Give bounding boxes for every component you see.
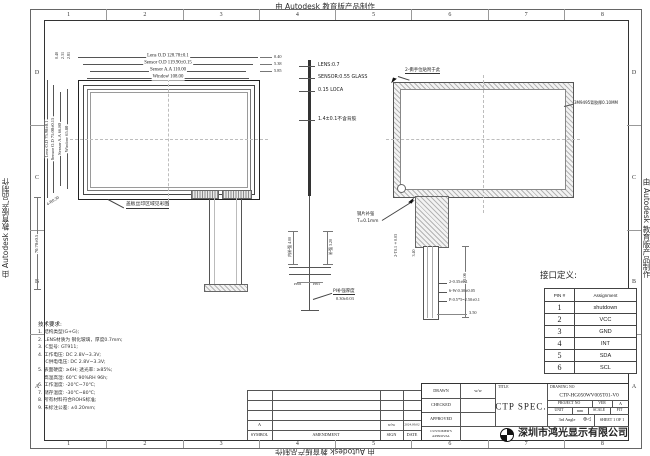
- revision-table: A w/w 2024.09.02 SYMBOL AMENDMENT SIGN D…: [247, 390, 421, 440]
- drawing-no-label: DRAWING NO: [550, 386, 574, 390]
- zone-col: 2: [107, 9, 183, 20]
- zone-col: 2: [107, 440, 183, 448]
- spec-label: 2-0.35±0.1: [449, 280, 468, 284]
- dim-label-sensor-od-h: Sensor O.D 119.90±0.15: [143, 62, 193, 67]
- assignment-col-header: Assignment: [574, 289, 636, 302]
- zone-col: 5: [336, 440, 412, 448]
- unit-value: mm: [577, 409, 583, 413]
- fpc-tail-trace: [427, 246, 428, 318]
- notes-title: 技术要求:: [38, 320, 248, 328]
- note-item: 2. LENS材质为 钢化玻璃，厚度0.7mm;: [38, 337, 248, 345]
- drawing-sheet: 由 Autodesk 教育版产品制作 由 Autodesk 教育版产品制作 由 …: [0, 0, 650, 456]
- leader-line: [299, 120, 315, 121]
- company-logo-icon: [500, 428, 514, 442]
- dim-label-lens-od-h: Lens O.D 128.78±0.1: [146, 55, 190, 60]
- project-no-label: PROJECT NO: [558, 402, 580, 406]
- note-item: 4. 工作电压: DC 2.8V~3.3V;: [38, 352, 248, 360]
- dim-tick: [34, 197, 41, 198]
- leader-line: [299, 66, 315, 67]
- pin-table-title: 接口定义:: [540, 272, 577, 281]
- spec-label: P:0.5*5=2.50±0.1: [449, 298, 480, 302]
- dim-tick: [323, 231, 333, 232]
- dim-label-offset: 2.81: [67, 52, 71, 59]
- note-item: 6. 工作温度: -20℃~70℃;: [38, 382, 248, 390]
- note-item: 5. 表面硬度: ≥6H; 透光率: ≥85%;: [38, 367, 248, 375]
- fpc-tail-trace: [432, 246, 433, 318]
- pin-number: 1: [545, 302, 575, 314]
- adhesive-tape-note: 3M9495背胶厚0.10MM: [574, 101, 618, 105]
- leader-line: [260, 57, 272, 58]
- note-item: 3. IC型号: GT911;: [38, 344, 248, 352]
- dim-tick: [34, 289, 41, 290]
- pin-number: 5: [545, 350, 575, 362]
- dim-label-offset: 2.31: [61, 52, 65, 59]
- table-line: [547, 384, 548, 426]
- centerline-horizontal: [70, 139, 268, 140]
- sheet-label: SHEET 1 OF 1: [600, 418, 624, 422]
- table-line: [422, 398, 495, 399]
- dim-tick: [301, 310, 319, 311]
- pi-stiffener-note: PI补强厚度: [333, 290, 355, 295]
- side-thickness-note: 2-T0.1±0.03: [394, 234, 398, 257]
- pin6-label: PIN6: [294, 283, 301, 286]
- zone-row: D: [30, 21, 44, 126]
- table-line: [247, 400, 421, 401]
- scale-label: SCALE: [593, 409, 605, 413]
- centerline-vertical: [483, 75, 484, 213]
- pin1-label: PIN1: [313, 283, 320, 286]
- unit-label: UNIT: [554, 409, 563, 413]
- zone-col: 5: [336, 9, 412, 20]
- table-line: [594, 414, 595, 426]
- layer-label-lens: LENS:0.7: [318, 64, 340, 69]
- pin-number: 3: [545, 326, 575, 338]
- leader-line: [260, 71, 272, 72]
- table-line: [247, 430, 421, 431]
- note-item: 7. 储存温度: -30℃~80℃;: [38, 390, 248, 398]
- zone-col: 8: [565, 440, 640, 448]
- symbol-header: SYMBOL: [251, 433, 268, 437]
- projection-symbol-icon: ⊕◁: [583, 418, 591, 423]
- dim-label-offset: 0.40: [55, 52, 59, 59]
- drawn-sign: w/w: [474, 389, 482, 393]
- ver-value: A: [619, 401, 622, 405]
- fpc-cross-line: [289, 274, 331, 275]
- table-line: [547, 414, 629, 415]
- leader-line: [438, 283, 447, 284]
- note-item: 9. 未标注公差: ±0.20mm;: [38, 405, 248, 413]
- centerline-vertical: [168, 74, 169, 206]
- date-header: DATE: [407, 433, 418, 437]
- zone-ruler-bottom: 1 2 3 4 5 6 7 8: [31, 440, 640, 448]
- leader-line: [299, 78, 315, 79]
- steel-stiffener-value: T=0.1mm: [357, 220, 378, 224]
- fpc-side-line: [309, 196, 310, 311]
- table-line: [422, 412, 495, 413]
- note-item: 高温高湿: 60℃ 90%RH 96h;: [38, 375, 248, 383]
- table-line: [272, 390, 273, 440]
- fpc-tail-edge: [241, 198, 242, 284]
- pin-assignment: SCL: [574, 362, 636, 374]
- dim-label-sensor-aa-v: Sensor A.A 66.80: [58, 122, 63, 156]
- layer-label-sensor: SENSOR:0.55 GLASS: [318, 76, 367, 81]
- technical-notes: 技术要求: 1. 结构类型(G+G); 2. LENS材质为 钢化玻璃，厚度0.…: [38, 320, 248, 413]
- revision-sign: w/w: [388, 423, 395, 427]
- zone-col: 1: [31, 440, 107, 448]
- tear-tab-note: 2-撕手位贴附于此: [405, 69, 440, 74]
- fpc-tail-edge: [209, 198, 210, 284]
- pin-assignment: INT: [574, 338, 636, 350]
- dim-label-window-h: Window 108.00: [152, 76, 185, 81]
- table-line: [592, 400, 593, 407]
- zone-col: 3: [184, 9, 260, 20]
- title-block: DRAWN w/w CHECKED APPROVED CUSTOMER'S AP…: [421, 383, 629, 441]
- dim-label-offset: 5.85: [274, 69, 282, 73]
- pin-assignment: SDA: [574, 350, 636, 362]
- zone-col: 7: [489, 440, 565, 448]
- layer-label-thickness: 1.4±0.1不含背胶: [318, 118, 356, 123]
- dim-tick: [462, 317, 469, 318]
- alignment-hole: [397, 184, 406, 193]
- revision-symbol: A: [258, 423, 261, 428]
- silk-print-note: 盖板丝印区域见彩图: [126, 203, 169, 209]
- leader-line: [438, 301, 447, 302]
- pin-number: 2: [545, 314, 575, 326]
- dim-line: [293, 231, 294, 264]
- zone-col: 4: [260, 440, 336, 448]
- company-name: 深圳市鸿光显示有限公司: [518, 429, 628, 439]
- zone-col: 6: [412, 440, 488, 448]
- dim-label-stiffener-left: 内补强 4.00: [288, 236, 292, 258]
- pin-number: 4: [545, 338, 575, 350]
- fpc-tail-body: [423, 246, 439, 320]
- table-line: [247, 390, 421, 391]
- dim-label-offset: 5.38: [274, 62, 282, 66]
- steel-stiffener-note: 钢片补强: [357, 213, 374, 217]
- dim-label-offset: 0.40: [274, 55, 282, 59]
- pin-number: 6: [545, 362, 575, 374]
- title-label: TITLE: [498, 386, 509, 390]
- dim-tick: [288, 231, 298, 232]
- table-line: [610, 407, 611, 414]
- dim-label-sensor-aa-h: Sensor A.A 110.00: [149, 69, 187, 74]
- pin-table: PIN # Assignment 1shutdown 2VCC 3GND 4IN…: [544, 288, 637, 374]
- table-line: [572, 407, 573, 414]
- pin-assignment: GND: [574, 326, 636, 338]
- leader-line: [299, 91, 315, 92]
- pin-assignment: VCC: [574, 314, 636, 326]
- fpc-stiffener: [204, 284, 248, 292]
- leader-line: [260, 64, 272, 65]
- watermark-left: 由 Autodesk 教育版产品制作: [0, 178, 11, 278]
- note-item: 8. 所有材料符合ROHS标准;: [38, 397, 248, 405]
- checked-label: CHECKED: [431, 403, 451, 407]
- drawing-title: CTP SPEC.: [495, 403, 546, 412]
- table-line: [380, 390, 381, 440]
- fpc-cross-line: [289, 267, 331, 268]
- leader-line: [438, 292, 447, 293]
- zone-col: 3: [184, 440, 260, 448]
- table-line: [612, 400, 613, 407]
- zone-col: 4: [260, 9, 336, 20]
- customer-approval-label: CUSTOMER'S APPROVAL: [423, 427, 459, 440]
- dim-label-total-length: 70.70±0.5: [35, 234, 40, 254]
- dim-label-lens-od-v: Lens O.D 75.98±0.1: [45, 120, 50, 159]
- steel-stiffener-block: [415, 196, 449, 248]
- layer-label-loca: 0.15 LOCA: [318, 89, 343, 94]
- leader-line: [437, 314, 467, 315]
- zone-col: 6: [412, 9, 488, 20]
- fpc-pad: [222, 190, 252, 199]
- fpc-tail-trace: [214, 198, 215, 284]
- front-view-active-area-outline: [90, 92, 248, 188]
- table-line: [247, 390, 248, 440]
- approved-label: APPROVED: [430, 417, 452, 421]
- zone-col: 1: [31, 9, 107, 20]
- dim-label-sensor-od-v: Sensor O.D 75.00±0.15: [51, 117, 56, 162]
- watermark-right: 由 Autodesk 教育版产品制作: [641, 178, 650, 278]
- zone-col: 7: [489, 9, 565, 20]
- dim-label: 3.40: [412, 249, 416, 258]
- pin-assignment: shutdown: [574, 302, 636, 314]
- note-item: IC供电电压: DC 2.8V~3.3V;: [38, 359, 248, 367]
- dim-tick: [323, 264, 333, 265]
- dim-label-stiffener-right: 补强 3.20: [329, 238, 333, 256]
- zone-row: D: [627, 21, 641, 126]
- zone-col: 8: [565, 9, 640, 20]
- spec-label: 6-W:0.30±0.05: [449, 289, 475, 293]
- table-line: [247, 420, 421, 421]
- stackup-section-line: [308, 60, 311, 196]
- revision-date: 2024.09.02: [404, 423, 419, 426]
- fit-label: FIT: [617, 409, 623, 413]
- fpc-tail-trace: [236, 198, 237, 284]
- table-line: [460, 384, 461, 441]
- zone-ruler-top: 1 2 3 4 5 6 7 8: [31, 9, 640, 20]
- zone-row: C: [627, 126, 641, 231]
- projection-angle-label: 3rd Angle: [559, 418, 576, 422]
- pin-col-header: PIN #: [545, 289, 575, 302]
- sign-header: SIGN: [387, 433, 397, 437]
- dim-tick: [288, 264, 298, 265]
- amendment-header: AMENDMENT: [312, 433, 339, 437]
- drawing-no-value: CTP-HG050WV005T01-V0: [559, 393, 618, 398]
- table-line: [588, 407, 589, 414]
- table-line: [403, 390, 404, 440]
- note-item: 1. 结构类型(G+G);: [38, 329, 248, 337]
- drawn-label: DRAWN: [433, 389, 448, 393]
- dim-label: 3.50: [469, 311, 477, 315]
- zone-ruler-right: D C B A: [627, 21, 641, 439]
- ver-label: VER: [598, 402, 606, 406]
- centerline-horizontal: [386, 139, 580, 140]
- pi-stiffener-value: 0.30±0.03: [336, 297, 354, 301]
- table-line: [247, 410, 421, 411]
- dim-label-window-v: Window 65.80: [65, 125, 70, 154]
- dim-tick: [462, 246, 469, 247]
